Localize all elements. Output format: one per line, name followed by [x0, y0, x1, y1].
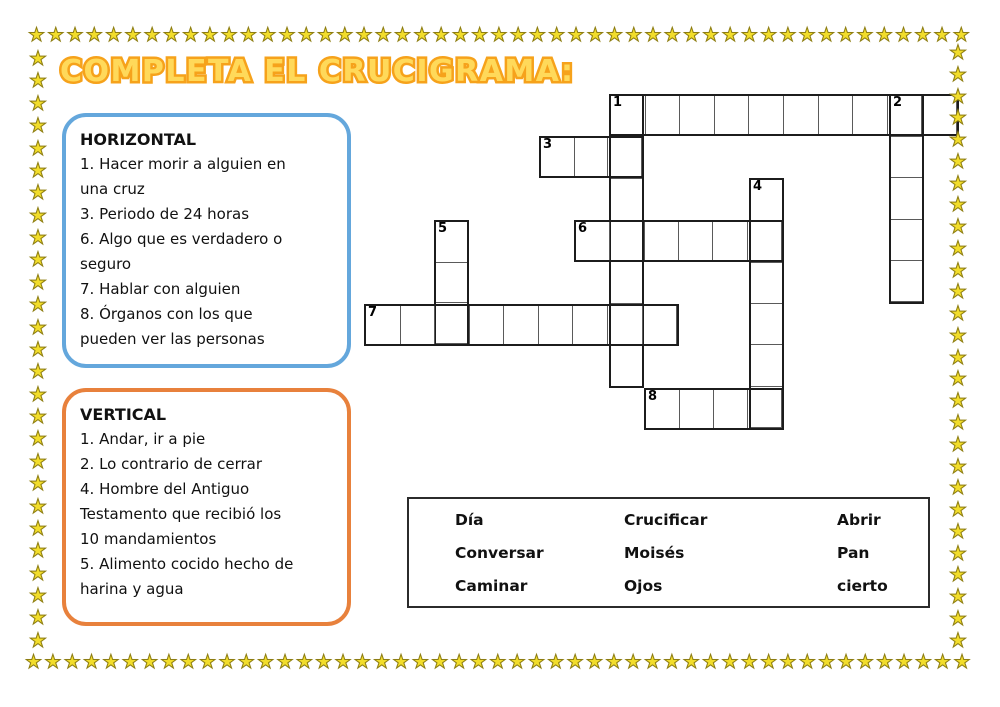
clue-item: 1. Hacer morir a alguien en una cruz: [80, 152, 304, 202]
word-number-label: 6: [578, 221, 587, 236]
clue-item: 7. Hablar con alguien: [80, 277, 304, 302]
clue-item: 8. Órganos con los que pueden ver las pe…: [80, 302, 304, 352]
word-7-across: 7: [364, 304, 679, 346]
clue-item: 5. Alimento cocido hecho de harina y agu…: [80, 552, 304, 602]
crossword-cell[interactable]: [853, 96, 888, 134]
crossword-cell[interactable]: [643, 306, 678, 344]
crossword-cell[interactable]: [891, 261, 922, 302]
word-bank-row: CaminarOjoscierto: [409, 577, 928, 595]
word-bank-item: Abrir: [837, 511, 928, 529]
crossword-cell[interactable]: [401, 306, 436, 344]
crossword-cell[interactable]: [891, 178, 922, 219]
crossword-cell[interactable]: [922, 96, 957, 134]
crossword-cell[interactable]: [715, 96, 750, 134]
horizontal-clues-box: HORIZONTAL 1. Hacer morir a alguien en u…: [62, 113, 351, 368]
crossword-cell[interactable]: [504, 306, 539, 344]
word-number-label: 7: [368, 305, 377, 320]
word-bank: DíaCrucificarAbrirConversarMoisésPanCami…: [407, 497, 930, 608]
crossword-cell[interactable]: [575, 138, 609, 176]
word-number-label: 4: [753, 179, 762, 194]
word-number-label: 3: [543, 137, 552, 152]
crossword-cell[interactable]: [611, 262, 642, 304]
word-number-label: 5: [438, 221, 447, 236]
crossword-cell[interactable]: [680, 390, 714, 428]
crossword-cell[interactable]: [646, 96, 681, 134]
crossword-cell[interactable]: [749, 96, 784, 134]
word-3-across: 3: [539, 136, 644, 178]
clue-item: 6. Algo que es verdadero o seguro: [80, 227, 304, 277]
word-bank-item: Crucificar: [624, 511, 837, 529]
crossword-cell[interactable]: [680, 96, 715, 134]
word-number-label: 8: [648, 389, 657, 404]
word-8-across: 8: [644, 388, 784, 430]
crossword-cell[interactable]: [573, 306, 608, 344]
word-bank-row: DíaCrucificarAbrir: [409, 511, 928, 529]
clue-item: 4. Hombre del Antiguo Testamento que rec…: [80, 477, 304, 552]
word-bank-item: Ojos: [624, 577, 837, 595]
crossword-cell[interactable]: [679, 222, 713, 260]
word-bank-item: Caminar: [455, 577, 624, 595]
horizontal-heading: HORIZONTAL: [80, 127, 333, 152]
crossword-cell[interactable]: [611, 96, 642, 138]
crossword-cell[interactable]: [819, 96, 854, 134]
crossword-cell[interactable]: [436, 263, 467, 304]
crossword-cell[interactable]: [748, 390, 782, 428]
crossword-cell[interactable]: [751, 263, 782, 304]
crossword-cell[interactable]: [784, 96, 819, 134]
crossword-cell[interactable]: [539, 306, 574, 344]
crossword-cell[interactable]: [891, 220, 922, 261]
crossword-cell[interactable]: [611, 345, 642, 386]
worksheet-page: ★★★★★★★★★★★★★★★★★★★★★★★★★★★★★★★★★★★★★★★★…: [0, 0, 1000, 707]
word-bank-item: Pan: [837, 544, 928, 562]
word-bank-item: cierto: [837, 577, 928, 595]
crossword-cell[interactable]: [611, 179, 642, 221]
word-6-across: 6: [574, 220, 784, 262]
word-bank-row: ConversarMoisésPan: [409, 544, 928, 562]
horizontal-clue-list: 1. Hacer morir a alguien en una cruz3. P…: [80, 152, 333, 352]
word-2-down: 2: [889, 94, 924, 304]
crossword-cell[interactable]: [751, 304, 782, 345]
crossword-cell[interactable]: [751, 345, 782, 386]
crossword-cell[interactable]: [748, 222, 782, 260]
vertical-clues-box: VERTICAL 1. Andar, ir a pie2. Lo contrar…: [62, 388, 351, 626]
clue-item: 3. Periodo de 24 horas: [80, 202, 304, 227]
word-bank-item: Conversar: [455, 544, 624, 562]
crossword-cell[interactable]: [891, 137, 922, 178]
clue-item: 1. Andar, ir a pie: [80, 427, 304, 452]
crossword-cell[interactable]: [714, 390, 748, 428]
word-number-label: 2: [893, 95, 902, 110]
word-bank-item: Moisés: [624, 544, 837, 562]
vertical-clue-list: 1. Andar, ir a pie2. Lo contrario de cer…: [80, 427, 333, 602]
clue-item: 2. Lo contrario de cerrar: [80, 452, 304, 477]
word-bank-item: Día: [455, 511, 624, 529]
crossword-cell[interactable]: [608, 306, 643, 344]
crossword-cell[interactable]: [470, 306, 505, 344]
crossword-cell[interactable]: [645, 222, 679, 260]
vertical-heading: VERTICAL: [80, 402, 333, 427]
crossword-cell[interactable]: [608, 138, 642, 176]
crossword-cell[interactable]: [610, 222, 644, 260]
crossword-cell[interactable]: [435, 306, 470, 344]
crossword-cell[interactable]: [713, 222, 747, 260]
